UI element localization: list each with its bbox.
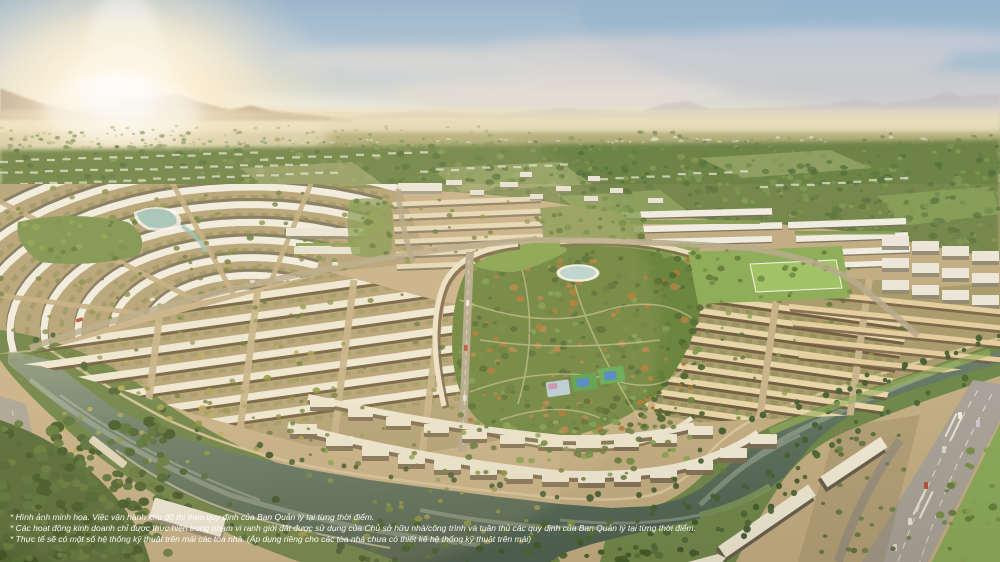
svg-text:* Hình ảnh minh họa. Việc vận: * Hình ảnh minh họa. Việc vận hành khu đ… <box>10 512 374 522</box>
svg-text:* Các hoạt động kinh doanh chỉ: * Các hoạt động kinh doanh chỉ được thực… <box>10 523 696 533</box>
svg-text:* Thực tế sẽ có một số hệ thốn: * Thực tế sẽ có một số hệ thống kỹ thuật… <box>10 534 531 544</box>
